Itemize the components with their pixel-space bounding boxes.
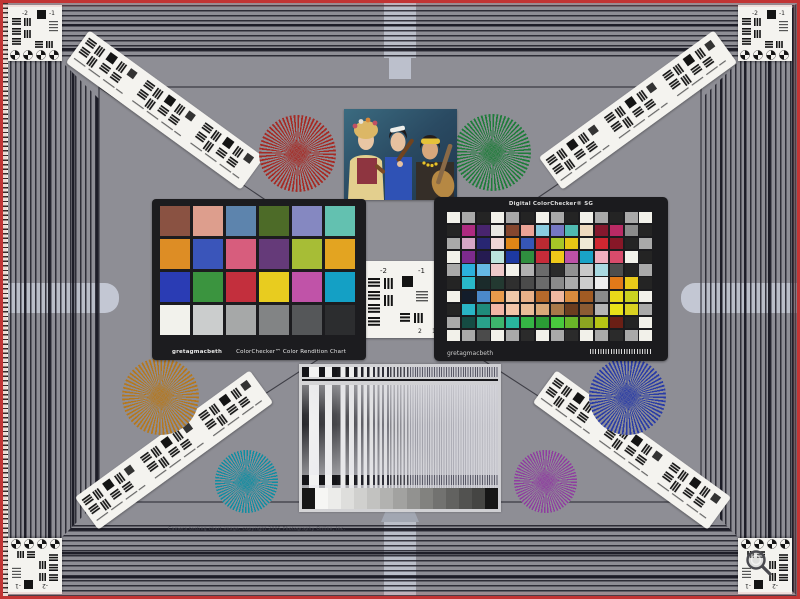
color-patch — [536, 238, 549, 249]
color-patch — [639, 304, 652, 315]
color-patch — [625, 264, 638, 275]
grayscale-step — [341, 488, 354, 509]
color-patch — [610, 251, 623, 262]
color-patch — [226, 239, 256, 269]
color-patch — [506, 291, 519, 302]
color-patch — [595, 330, 608, 341]
corner-card-top-left — [8, 5, 62, 61]
color-patch — [595, 304, 608, 315]
step-wedge-endcap — [485, 488, 498, 509]
color-patch — [193, 272, 223, 302]
color-patch — [639, 251, 652, 262]
step-wedge-endcap — [302, 488, 315, 509]
color-patch — [580, 212, 593, 223]
colorchecker-patch-grid — [160, 206, 355, 335]
color-patch — [491, 264, 504, 275]
color-patch — [551, 264, 564, 275]
color-patch — [521, 264, 534, 275]
color-patch — [521, 291, 534, 302]
color-patch — [477, 330, 490, 341]
color-patch — [477, 238, 490, 249]
color-patch — [595, 317, 608, 328]
color-patch — [639, 330, 652, 341]
color-patch — [491, 330, 504, 341]
color-patch — [506, 264, 519, 275]
color-patch — [639, 225, 652, 236]
color-patch — [506, 330, 519, 341]
color-patch — [521, 225, 534, 236]
color-patch — [580, 225, 593, 236]
color-patch — [193, 206, 223, 236]
color-patch — [551, 304, 564, 315]
color-patch — [506, 225, 519, 236]
color-patch — [639, 238, 652, 249]
color-patch — [491, 291, 504, 302]
color-patch — [462, 251, 475, 262]
sg-patch-grid — [447, 212, 652, 341]
color-patch — [551, 317, 564, 328]
sg-brand: gretagmacbeth — [447, 350, 493, 357]
color-patch — [625, 212, 638, 223]
color-patch — [625, 317, 638, 328]
color-patch — [565, 264, 578, 275]
color-patch — [610, 330, 623, 341]
color-patch — [447, 291, 460, 302]
svg-text:2: 2 — [418, 328, 422, 335]
color-patch — [565, 277, 578, 288]
grayscale-step — [407, 488, 420, 509]
color-patch — [595, 251, 608, 262]
color-patch — [447, 238, 460, 249]
color-patch — [551, 238, 564, 249]
center-usaf-card: -2 -1 2 1 — [358, 261, 442, 338]
color-patch — [447, 212, 460, 223]
colorchecker-brand: gretagmacbeth — [172, 349, 222, 355]
svg-text:-1: -1 — [418, 267, 425, 275]
corner-card-top-right — [738, 5, 792, 61]
color-patch — [565, 330, 578, 341]
color-patch — [536, 277, 549, 288]
color-patch — [506, 212, 519, 223]
color-patch — [477, 264, 490, 275]
grayscale-step — [433, 488, 446, 509]
color-patch — [551, 291, 564, 302]
color-patch — [536, 264, 549, 275]
siemens-star-red — [259, 115, 336, 192]
color-patch — [193, 305, 223, 335]
colorchecker-classic: gretagmacbeth ColorChecker™ Color Rendit… — [152, 199, 366, 360]
color-patch — [536, 291, 549, 302]
magnifier-cursor-icon — [744, 548, 774, 578]
color-patch — [292, 206, 322, 236]
color-patch — [639, 317, 652, 328]
color-patch — [625, 304, 638, 315]
color-patch — [565, 251, 578, 262]
frequency-sweep-panel — [299, 364, 501, 512]
color-patch — [226, 272, 256, 302]
color-patch — [292, 272, 322, 302]
color-patch — [447, 277, 460, 288]
color-patch — [506, 238, 519, 249]
color-patch — [551, 212, 564, 223]
color-patch — [521, 330, 534, 341]
color-patch — [292, 239, 322, 269]
color-patch — [625, 225, 638, 236]
test-chart-scene: -2 -1 — [0, 0, 800, 599]
color-patch — [536, 225, 549, 236]
color-patch — [325, 305, 355, 335]
color-patch — [580, 304, 593, 315]
color-patch — [565, 304, 578, 315]
grayscale-step — [393, 488, 406, 509]
color-patch — [447, 330, 460, 341]
color-patch — [160, 239, 190, 269]
color-patch — [160, 206, 190, 236]
color-patch — [580, 251, 593, 262]
color-patch — [462, 304, 475, 315]
color-patch — [595, 225, 608, 236]
color-patch — [536, 304, 549, 315]
color-patch — [462, 291, 475, 302]
color-patch — [580, 277, 593, 288]
color-patch — [565, 238, 578, 249]
color-patch — [462, 317, 475, 328]
color-patch — [551, 330, 564, 341]
siemens-star-green — [454, 114, 531, 191]
color-patch — [506, 277, 519, 288]
color-patch — [610, 291, 623, 302]
siemens-star-purple — [514, 450, 577, 513]
color-patch — [625, 251, 638, 262]
color-patch — [226, 206, 256, 236]
colorchecker-sg: Digital ColorChecker® SG gretagmacbeth — [434, 197, 668, 361]
photo-three-musicians — [344, 109, 457, 200]
color-patch — [536, 251, 549, 262]
color-patch — [580, 264, 593, 275]
color-patch — [325, 272, 355, 302]
color-patch — [226, 305, 256, 335]
color-patch — [551, 251, 564, 262]
colorchecker-title: ColorChecker™ Color Rendition Chart — [236, 349, 346, 355]
color-patch — [595, 264, 608, 275]
color-patch — [325, 206, 355, 236]
color-patch — [521, 238, 534, 249]
color-patch — [625, 277, 638, 288]
color-patch — [625, 238, 638, 249]
color-patch — [462, 330, 475, 341]
color-patch — [447, 304, 460, 315]
color-patch — [477, 212, 490, 223]
color-patch — [536, 212, 549, 223]
chirp-bar-top — [302, 367, 498, 377]
color-patch — [259, 272, 289, 302]
grayscale-step-wedge — [302, 488, 498, 509]
color-patch — [491, 212, 504, 223]
color-patch — [521, 277, 534, 288]
color-patch — [160, 272, 190, 302]
color-patch — [595, 277, 608, 288]
color-patch — [259, 305, 289, 335]
color-patch — [551, 225, 564, 236]
grayscale-step — [459, 488, 472, 509]
color-patch — [506, 251, 519, 262]
color-patch — [325, 239, 355, 269]
color-patch — [639, 264, 652, 275]
color-patch — [477, 225, 490, 236]
color-patch — [447, 317, 460, 328]
grayscale-step — [354, 488, 367, 509]
color-patch — [462, 225, 475, 236]
color-patch — [447, 251, 460, 262]
color-patch — [462, 277, 475, 288]
grayscale-step — [420, 488, 433, 509]
color-patch — [477, 291, 490, 302]
color-patch — [639, 212, 652, 223]
color-patch — [462, 238, 475, 249]
color-patch — [639, 291, 652, 302]
color-patch — [610, 212, 623, 223]
color-patch — [610, 317, 623, 328]
color-patch — [551, 277, 564, 288]
color-patch — [521, 304, 534, 315]
sg-title: Digital ColorChecker® SG — [434, 201, 668, 207]
grayscale-step — [315, 488, 328, 509]
color-patch — [580, 291, 593, 302]
panel-divider-line — [302, 379, 498, 381]
color-patch — [580, 330, 593, 341]
color-patch — [506, 317, 519, 328]
color-patch — [536, 330, 549, 341]
grayscale-step — [328, 488, 341, 509]
grayscale-step — [446, 488, 459, 509]
color-patch — [160, 305, 190, 335]
color-patch — [565, 291, 578, 302]
color-patch — [477, 251, 490, 262]
color-patch — [477, 277, 490, 288]
color-patch — [477, 304, 490, 315]
color-patch — [610, 304, 623, 315]
color-patch — [491, 251, 504, 262]
color-patch — [536, 317, 549, 328]
color-patch — [447, 225, 460, 236]
color-patch — [610, 238, 623, 249]
chirp-bar-bottom2 — [302, 475, 498, 485]
color-patch — [491, 225, 504, 236]
color-patch — [595, 212, 608, 223]
color-patch — [491, 304, 504, 315]
color-patch — [595, 291, 608, 302]
grayscale-step — [380, 488, 393, 509]
color-patch — [610, 225, 623, 236]
color-patch — [193, 239, 223, 269]
color-patch — [625, 330, 638, 341]
corner-card-bottom-left — [8, 538, 62, 594]
color-patch — [521, 251, 534, 262]
color-patch — [462, 212, 475, 223]
svg-text:-2: -2 — [380, 267, 387, 275]
color-patch — [595, 238, 608, 249]
color-patch — [462, 264, 475, 275]
color-patch — [565, 212, 578, 223]
color-patch — [580, 317, 593, 328]
color-patch — [259, 206, 289, 236]
siemens-star-teal — [215, 450, 278, 513]
color-patch — [491, 238, 504, 249]
color-patch — [477, 317, 490, 328]
copyright-text: Camera testing chart image, copyright 20… — [168, 527, 345, 532]
color-patch — [521, 212, 534, 223]
grayscale-step — [367, 488, 380, 509]
color-patch — [491, 317, 504, 328]
color-patch — [506, 304, 519, 315]
siemens-star-orange — [122, 358, 199, 435]
color-patch — [447, 264, 460, 275]
color-patch — [521, 317, 534, 328]
color-patch — [565, 317, 578, 328]
color-patch — [610, 264, 623, 275]
color-patch — [610, 277, 623, 288]
grayscale-step — [472, 488, 485, 509]
color-patch — [580, 238, 593, 249]
color-patch — [639, 277, 652, 288]
color-patch — [565, 225, 578, 236]
color-patch — [625, 291, 638, 302]
color-patch — [491, 277, 504, 288]
siemens-star-blue — [589, 358, 666, 435]
color-patch — [259, 239, 289, 269]
color-patch — [292, 305, 322, 335]
sg-barcode — [590, 349, 652, 354]
